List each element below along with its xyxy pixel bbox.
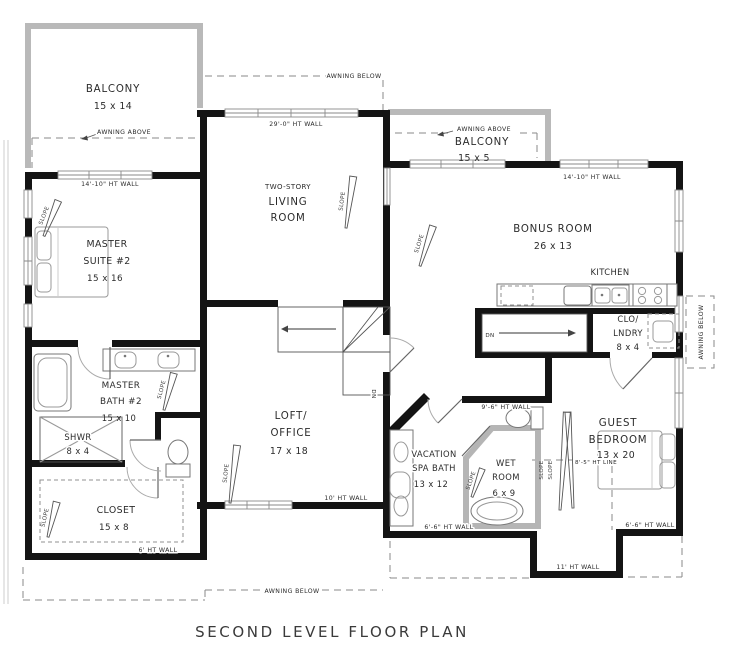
slope-label: SLOPE: [414, 234, 426, 254]
wall-segment: [292, 502, 390, 509]
room-label: CLO/: [617, 314, 638, 324]
wall-segment: [616, 529, 623, 578]
awning-label: AWNING ABOVE: [97, 129, 151, 136]
room-dims: 15 x 16: [87, 274, 123, 284]
wall-segment: [530, 571, 623, 578]
awning-dash: [23, 567, 205, 600]
wall-segment: [343, 300, 390, 307]
wall-segment: [155, 412, 207, 418]
room-label: CLOSET: [97, 505, 136, 516]
floor-plan-canvas: SLOPE SLOPE SLOPE SLOPE SLOPE SLOPE SLOP…: [0, 0, 735, 664]
room-dims: 15 x 14: [94, 101, 132, 112]
room-label: TWO-STORY: [264, 183, 311, 191]
room-dims: 13 x 12: [414, 479, 448, 489]
stair-winder-lines: [343, 307, 390, 352]
wall-segment: [112, 340, 207, 347]
wall-height-label: 29'-0" HT WALL: [269, 121, 323, 128]
room-label: MASTER: [86, 239, 127, 250]
wall-segment: [197, 110, 225, 117]
wall-segment: [383, 372, 390, 538]
room-label: WET: [496, 458, 516, 468]
wall-segment: [25, 553, 207, 560]
window: [225, 501, 292, 509]
room-label: BEDROOM: [589, 435, 648, 446]
arrow-head-icon: [568, 330, 576, 337]
stairs-bonus: [482, 314, 587, 352]
room-dims: 6 x 9: [493, 488, 516, 498]
wall-segment: [152, 172, 207, 179]
awning-label-group: AWNING BELOW: [698, 304, 705, 359]
slope-label: SLOPE: [338, 191, 347, 211]
faucet-icon: [124, 355, 127, 358]
wall-segment: [587, 308, 593, 358]
cabinet: [564, 286, 591, 305]
awning-label: AWNING BELOW: [698, 304, 705, 359]
room-dims: 15 x 8: [99, 523, 129, 533]
window: [24, 304, 32, 327]
slope-label: SLOPE: [539, 460, 545, 479]
drain-icon: [618, 294, 621, 297]
wall-segment: [25, 327, 32, 560]
room-dims: 8 x 4: [67, 446, 90, 456]
door-water-closet: [130, 440, 161, 471]
window: [24, 237, 32, 285]
room-label: SHWR: [64, 432, 91, 442]
room-label: SPA BATH: [412, 463, 456, 473]
room-label: BATH #2: [100, 397, 142, 407]
window: [24, 190, 32, 218]
slope-label-group: SLOPE: [548, 460, 554, 479]
height-line-label: 8'-5" HT LINE: [575, 460, 617, 466]
awning-label: AWNING BELOW: [326, 73, 381, 80]
room-dims: 26 x 13: [534, 241, 572, 252]
awning-label: AWNING ABOVE: [457, 126, 511, 133]
slope-label: SLOPE: [38, 206, 51, 226]
stair-lower-run: [343, 352, 390, 395]
slope-marker: SLOPE: [336, 175, 357, 228]
stairs-loft: [278, 307, 390, 395]
wall-segment: [25, 285, 32, 304]
wall-height-label: 10' HT WALL: [324, 495, 367, 502]
toilet-bowl: [506, 409, 530, 428]
room-dims: 8 x 4: [617, 342, 640, 352]
laundry-fixtures: [648, 314, 679, 348]
slope-marker: SLOPE: [38, 500, 60, 538]
room-label: BALCONY: [86, 84, 140, 95]
room-label: BONUS ROOM: [513, 224, 593, 235]
room-label: OFFICE: [270, 428, 311, 439]
wall-segment: [652, 352, 683, 358]
wall-segment: [676, 161, 683, 190]
wall-height-label: 9'-6" HT WALL: [481, 404, 530, 411]
wall-segment: [475, 308, 683, 314]
pillow: [37, 231, 51, 260]
room-dims: 17 x 18: [270, 446, 308, 457]
room-label: KITCHEN: [590, 267, 629, 277]
room-label: ROOM: [270, 213, 305, 224]
balcony-tl-railing: [28, 26, 200, 168]
arrow-line: [86, 134, 97, 138]
window: [58, 171, 152, 179]
window: [675, 190, 683, 252]
awning-dash: [628, 536, 682, 577]
drain-icon: [601, 294, 604, 297]
wall-segment: [25, 218, 32, 237]
arrow-head-icon: [437, 132, 444, 137]
toilet-tank: [531, 407, 543, 429]
stair-direction-label: DN: [485, 333, 494, 339]
spa-tub: [471, 497, 523, 525]
room-dims: 15 x 10: [102, 413, 136, 423]
door-stair-landing: [390, 338, 414, 372]
page-title: SECOND LEVEL FLOOR PLAN: [195, 623, 469, 641]
slope-marker: SLOPE: [410, 223, 436, 267]
wall-segment: [383, 531, 537, 538]
wall-segment: [462, 396, 552, 403]
wall-segment: [530, 531, 537, 578]
wall-segment: [200, 300, 278, 307]
stair-direction-label-group: DN: [370, 389, 376, 398]
wall-height-label: 6'-6" HT WALL: [625, 522, 674, 529]
window: [225, 109, 358, 117]
toilet-tank: [166, 464, 190, 477]
door-closet: [127, 467, 158, 498]
wall-segment: [475, 352, 610, 358]
wet-room-glass-door: [462, 426, 490, 456]
stove: [633, 284, 667, 306]
room-dims: 15 x 5: [458, 153, 490, 164]
room-label: BALCONY: [455, 137, 509, 148]
wall-segment: [676, 428, 683, 535]
room-label: ROOM: [492, 472, 520, 482]
slope-marker: SLOPE: [154, 371, 177, 411]
room-label: LOFT/: [275, 411, 308, 422]
wall-height-label: 6'-6" HT WALL: [424, 524, 473, 531]
door-spa-bath: [428, 399, 462, 423]
wall-segment: [197, 502, 225, 509]
window: [384, 168, 390, 205]
faucet-icon: [167, 355, 170, 358]
room-label: SUITE #2: [83, 256, 130, 267]
wall-segment: [505, 161, 560, 168]
window: [675, 358, 683, 428]
room-label: GUEST: [599, 418, 637, 429]
floor-plan-page: SLOPE SLOPE SLOPE SLOPE SLOPE SLOPE SLOP…: [0, 0, 735, 664]
slope-label: SLOPE: [222, 463, 230, 483]
room-label: LIVING: [269, 197, 308, 208]
wall-segment: [616, 529, 683, 536]
wall-segment: [383, 161, 410, 168]
slope-label-group: SLOPE: [539, 460, 545, 479]
window: [560, 160, 648, 168]
wall-segment: [545, 358, 552, 403]
wall-segment: [155, 412, 161, 440]
wall-height-label: 14'-10" HT WALL: [563, 174, 621, 181]
wall-segment: [25, 340, 78, 347]
room-label: VACATION: [411, 449, 456, 459]
washer-drum: [653, 321, 673, 342]
room-label: MASTER: [102, 381, 141, 391]
slope-label: SLOPE: [548, 460, 554, 479]
awning-dash: [390, 541, 530, 578]
pillow: [37, 263, 51, 292]
wall-height-label: 14'-10" HT WALL: [81, 181, 139, 188]
wall-segment: [475, 308, 482, 358]
slope-marker: SLOPE: [220, 444, 240, 503]
arrow-head-icon: [281, 326, 288, 333]
room-label: LNDRY: [613, 328, 643, 338]
wall-segment: [25, 172, 32, 190]
wall-height-label: 11' HT WALL: [556, 564, 599, 571]
stair-direction-label: DN: [370, 389, 376, 398]
wall-height-label: 6' HT WALL: [139, 547, 178, 554]
dashed-lines: [23, 76, 714, 600]
toilet-bowl: [168, 440, 188, 464]
door-guest-bedroom: [610, 358, 652, 389]
awning-label: AWNING BELOW: [264, 588, 319, 595]
vanity-counter: [103, 349, 195, 371]
kitchen-counter: [497, 284, 677, 306]
